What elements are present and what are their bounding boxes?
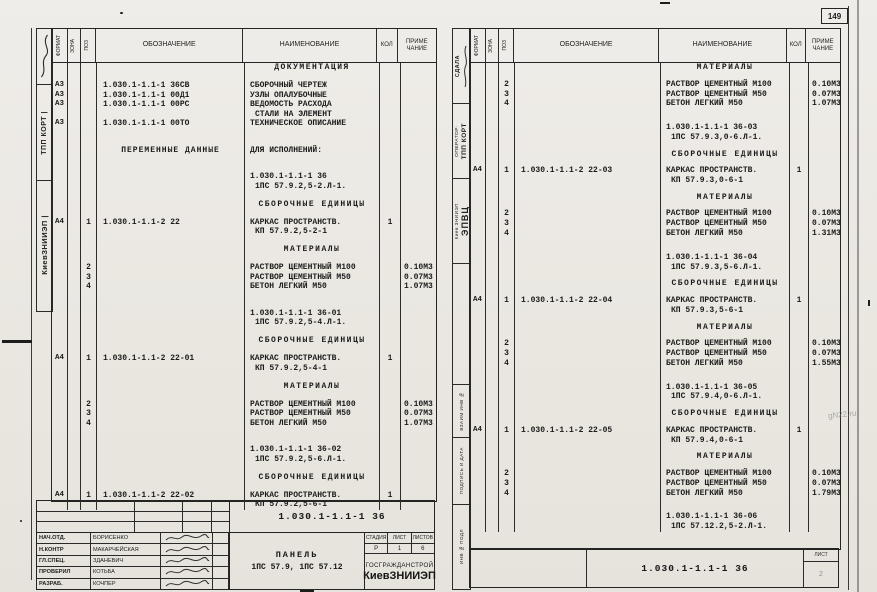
column-header-zone: ЗОНА xyxy=(71,39,77,53)
spec-line xyxy=(52,373,436,382)
spec-line xyxy=(470,159,840,166)
spec-line xyxy=(470,186,840,193)
role-label: ГЛ.СПЕЦ. xyxy=(37,556,91,566)
spec-line: 3РАСТВОР ЦЕМЕНТНЫЙ М500.07М3 xyxy=(470,479,840,489)
right-table-header: ФОРМАТ ЗОНА ПОЗ ОБОЗНАЧЕНИЕ НАИМЕНОВАНИЕ… xyxy=(470,29,840,63)
spec-line xyxy=(52,137,436,146)
spec-line: А411.030.1-1.1-2 22-03КАРКАС ПРОСТРАНСТВ… xyxy=(470,166,840,176)
column-header-pos: ПОЗ xyxy=(85,40,91,51)
spec-line: А411.030.1-1.1-2 22-04КАРКАС ПРОСТРАНСТВ… xyxy=(470,296,840,306)
podpis-data-label: ПОДПИСЬ И ДАТА xyxy=(459,447,464,494)
spec-line xyxy=(470,446,840,453)
date-cell xyxy=(213,579,229,589)
title-block-row: НАЧ.ОТД.БОРИСЕНКО xyxy=(37,533,229,544)
spec-line xyxy=(470,376,840,383)
left-margin-stamp-kievzniiep: КиевЗНИИЭП | xyxy=(37,181,52,309)
left-margin-stamp-tpp-kort: ТПП КОРТ | xyxy=(37,85,52,181)
right-page-frame-line xyxy=(848,6,849,590)
spec-line xyxy=(470,143,840,150)
spec-line xyxy=(52,129,436,138)
panel-title-line1: ПАНЕЛЬ xyxy=(276,550,319,560)
spec-line xyxy=(52,255,436,264)
sheets-value: 6 xyxy=(412,544,434,553)
spec-line xyxy=(52,292,436,301)
spec-line xyxy=(52,464,436,473)
spec-line: 1ПС 57.9.3,0-6.Л-1. xyxy=(470,133,840,143)
spec-line: 3РАСТВОР ЦЕМЕНТНЫЙ М500.07М3 xyxy=(470,90,840,100)
site-watermark: gN22.ru xyxy=(828,409,857,421)
spec-line: 1ПС 57.9.2,5-2.Л-1. xyxy=(52,182,436,192)
spec-line: 1ПС 57.12.2,5-2.Л-1. xyxy=(470,522,840,532)
column-header-designation: ОБОЗНАЧЕНИЕ xyxy=(560,41,613,49)
spec-line xyxy=(52,428,436,437)
footer-sheet-value: 2 xyxy=(804,562,838,587)
spec-line: СТАЛИ НА ЭЛЕМЕНТ xyxy=(52,110,436,120)
spec-line: МАТЕРИАЛЫ xyxy=(470,193,840,203)
spec-line xyxy=(52,73,436,82)
handwritten-signature xyxy=(37,29,52,84)
spec-line: 2РАСТВОР ЦЕМЕНТНЫЙ М1000.10М3 xyxy=(52,400,436,410)
spec-line xyxy=(52,328,436,337)
spec-line: 1.030.1-1.1-1 36-01 xyxy=(52,309,436,319)
left-page-frame-line xyxy=(31,28,32,580)
title-block-signature-rows: НАЧ.ОТД.БОРИСЕНКОН.КОНТРМАКАРЧЕЙСКАЯГЛ.С… xyxy=(36,532,230,590)
spec-line xyxy=(470,369,840,376)
spec-line xyxy=(470,419,840,426)
stage-label: СТАДИЯ xyxy=(365,533,388,543)
title-block-row: Н.КОНТРМАКАРЧЕЙСКАЯ xyxy=(37,544,229,555)
handwritten-signature xyxy=(161,567,213,577)
spec-line xyxy=(470,239,840,246)
spec-line: 1ПС 57.9.4,0-6.Л-1. xyxy=(470,392,840,402)
panel-title-line2: 1ПС 57.9, 1ПС 57.12 xyxy=(251,563,342,572)
spec-line xyxy=(52,191,436,200)
spec-line: А411.030.1-1.1-2 22-02КАРКАС ПРОСТРАНСТВ… xyxy=(52,491,436,501)
handwritten-signature xyxy=(161,579,213,589)
column-header-note-line2: ЧАНИЕ xyxy=(812,46,833,53)
scan-speck xyxy=(868,300,870,306)
spec-line xyxy=(52,209,436,218)
scan-speck xyxy=(120,12,123,14)
role-label: РАЗРАБ. xyxy=(37,579,91,589)
page-number-box: 149 xyxy=(821,8,848,24)
inv-podl-label: ИНВ № ПОДЛ xyxy=(459,529,464,564)
spec-line: СБОРОЧНЫЕ ЕДИНИЦЫ xyxy=(470,409,840,419)
date-cell xyxy=(213,544,229,554)
spec-line xyxy=(470,402,840,409)
scan-edge-line xyxy=(857,0,859,592)
person-name: КОТЬБА xyxy=(91,567,161,577)
spec-line xyxy=(470,506,840,513)
spec-line: 1ПС 57.9.2,5-4.Л-1. xyxy=(52,318,436,328)
spec-line: 4БЕТОН ЛЕГКИЙ М501.79М3 xyxy=(470,489,840,499)
spec-line: 2РАСТВОР ЦЕМЕНТНЫЙ М1000.10М3 xyxy=(470,80,840,90)
left-table-header: ФОРМАТ ЗОНА ПОЗ ОБОЗНАЧЕНИЕ НАИМЕНОВАНИЕ… xyxy=(52,29,436,63)
date-cell xyxy=(213,533,229,543)
spec-line: МАТЕРИАЛЫ xyxy=(52,382,436,392)
column-header-note-line1: ПРИМЕ xyxy=(812,39,834,46)
spec-line: 4БЕТОН ЛЕГКИЙ М501.07М3 xyxy=(470,99,840,109)
spec-line xyxy=(470,462,840,469)
stamp-label: КиевЗНИИЭП | xyxy=(40,215,49,275)
spec-line: КП 57.9.4,0-6-1 xyxy=(470,436,840,446)
column-header-format: ФОРМАТ xyxy=(475,35,481,56)
spec-line: СБОРОЧНЫЕ ЕДИНИЦЫ xyxy=(470,150,840,160)
sheets-label: ЛИСТОВ xyxy=(412,533,434,543)
scan-speck xyxy=(660,2,670,4)
left-spec-table: ФОРМАТ ЗОНА ПОЗ ОБОЗНАЧЕНИЕ НАИМЕНОВАНИЕ… xyxy=(51,28,437,502)
spec-line xyxy=(470,332,840,339)
kiev-zniiep-label: Киев ЗНИИЭП xyxy=(454,203,459,239)
spec-line: КП 57.9.2,5-4-1 xyxy=(52,364,436,374)
spec-line: 1ПС 57.9.3,5-6.Л-1. xyxy=(470,263,840,273)
person-name: МАКАРЧЕЙСКАЯ xyxy=(91,544,161,554)
org-name-line1: ГОСГРАЖДАНСТРОЙ xyxy=(366,562,434,569)
date-cell xyxy=(213,567,229,577)
spec-line: А31.030.1-1.1-1 00Д1УЗЛЫ ОПАЛУБОЧНЫЕ xyxy=(52,91,436,101)
vzaim-inv-label: ВЗАИМ ИНВ № xyxy=(459,392,464,431)
spec-line: А411.030.1-1.1-2 22-01КАРКАС ПРОСТРАНСТВ… xyxy=(52,354,436,364)
right-footer-band: 1.030.1-1.1-1 36 ЛИСТ 2 xyxy=(469,548,839,588)
spec-line: ДОКУМЕНТАЦИЯ xyxy=(52,63,436,73)
handwritten-signature xyxy=(161,533,213,543)
operator-label: ОПЕРАТОР· xyxy=(455,125,460,157)
title-block-row: ПРОВЕРИЛКОТЬБА xyxy=(37,567,229,578)
footer-doc-number: 1.030.1-1.1-1 36 xyxy=(587,549,803,587)
column-header-qty: КОЛ xyxy=(381,42,393,49)
spec-line: СБОРОЧНЫЕ ЕДИНИЦЫ xyxy=(52,336,436,346)
role-label: Н.КОНТР xyxy=(37,544,91,554)
right-margin-sdala-box: СДАЛА xyxy=(453,29,470,104)
role-label: НАЧ.ОТД. xyxy=(37,533,91,543)
spec-line xyxy=(470,273,840,280)
right-table-body: МАТЕРИАЛЫ2РАСТВОР ЦЕМЕНТНЫЙ М1000.10М33Р… xyxy=(470,63,840,532)
right-margin-vzaim-box: ВЗАИМ ИНВ № xyxy=(453,385,470,438)
spec-line: КП 57.9.3,5-6-1 xyxy=(470,306,840,316)
left-table-body: ДОКУМЕНТАЦИЯА31.030.1-1.1-1 36СВСБОРОЧНЫ… xyxy=(52,63,436,510)
spec-line: 4БЕТОН ЛЕГКИЙ М501.55М3 xyxy=(470,359,840,369)
column-header-note-line1: ПРИМЕ xyxy=(406,39,428,46)
scan-speck xyxy=(20,520,22,522)
spec-line: 4БЕТОН ЛЕГКИЙ М501.07М3 xyxy=(52,419,436,429)
column-header-note-line2: ЧАНИЕ xyxy=(406,46,427,53)
footer-sheet-box: ЛИСТ 2 xyxy=(803,549,838,587)
right-margin-empty-box xyxy=(453,264,470,385)
spec-line xyxy=(52,155,436,164)
spec-line xyxy=(52,482,436,491)
spec-line: 1.030.1-1.1-1 36-05 xyxy=(470,383,840,393)
spec-line: КП 57.9.3,0-6-1 xyxy=(470,176,840,186)
footer-left-cell xyxy=(470,549,587,587)
spec-line: 2РАСТВОР ЦЕМЕНТНЫЙ М1000.10М3 xyxy=(470,209,840,219)
spec-line xyxy=(52,346,436,355)
column-header-format: ФОРМАТ xyxy=(57,35,63,56)
spec-line: А31.030.1-1.1-1 00ТОТЕХНИЧЕСКОЕ ОПИСАНИЕ xyxy=(52,119,436,129)
stamp-label: ТПП КОРТ | xyxy=(41,111,48,155)
revision-grid xyxy=(36,500,230,533)
tpp-kort-label: ТПП КОРТ xyxy=(461,123,468,159)
spec-line xyxy=(52,437,436,446)
spec-line: 3РАСТВОР ЦЕМЕНТНЫЙ М500.07М3 xyxy=(52,273,436,283)
title-block-doc-number: 1.030.1-1.1-1 36 xyxy=(229,500,435,533)
stage-value: Р xyxy=(365,544,388,553)
spec-line: 4БЕТОН ЛЕГКИЙ М501.07М3 xyxy=(52,282,436,292)
page-number: 149 xyxy=(828,12,841,21)
spec-line: 1.030.1-1.1-1 36-06 xyxy=(470,512,840,522)
spec-line xyxy=(470,73,840,80)
spec-line: МАТЕРИАЛЫ xyxy=(52,245,436,255)
spec-line: СБОРОЧНЫЕ ЕДИНИЦЫ xyxy=(470,279,840,289)
right-margin-podpis-box: ПОДПИСЬ И ДАТА xyxy=(453,438,470,505)
right-margin-inv-box: ИНВ № ПОДЛ xyxy=(453,505,470,589)
spec-line xyxy=(470,316,840,323)
spec-line: 1.030.1-1.1-1 36-03 xyxy=(470,123,840,133)
spec-line xyxy=(470,203,840,210)
handwritten-signature xyxy=(161,556,213,566)
right-margin-operator-box: ОПЕРАТОР· ТПП КОРТ xyxy=(453,104,470,179)
sheet-value: 1 xyxy=(388,544,411,553)
column-header-qty: КОЛ xyxy=(790,42,802,49)
right-margin-epvc-box: Киев ЗНИИЭП ЭПВЦ xyxy=(453,179,470,264)
right-spec-table: ФОРМАТ ЗОНА ПОЗ ОБОЗНАЧЕНИЕ НАИМЕНОВАНИЕ… xyxy=(469,28,841,550)
org-name-line2: КиевЗНИИЭП xyxy=(363,570,436,582)
spec-line xyxy=(470,109,840,116)
person-name: БОРИСЕНКО xyxy=(91,533,161,543)
spec-line: МАТЕРИАЛЫ xyxy=(470,323,840,333)
role-label: ПРОВЕРИЛ xyxy=(37,567,91,577)
spec-line: 1.030.1-1.1-1 36 xyxy=(52,172,436,182)
spec-line xyxy=(470,289,840,296)
column-header-pos: ПОЗ xyxy=(503,40,509,51)
spec-line: 2РАСТВОР ЦЕМЕНТНЫЙ М1000.10М3 xyxy=(52,263,436,273)
spec-line: 3РАСТВОР ЦЕМЕНТНЫЙ М500.07М3 xyxy=(52,409,436,419)
scanned-specification-sheet: ТПП КОРТ | КиевЗНИИЭП | ФОРМАТ ЗОНА ПОЗ … xyxy=(0,0,877,592)
spec-line: А31.030.1-1.1-1 00РСВЕДОМОСТЬ РАСХОДА xyxy=(52,100,436,110)
spec-line xyxy=(52,237,436,246)
spec-line: 2РАСТВОР ЦЕМЕНТНЫЙ М1000.10М3 xyxy=(470,339,840,349)
column-header-designation: ОБОЗНАЧЕНИЕ xyxy=(143,41,196,49)
sdala-label: СДАЛА xyxy=(455,55,461,77)
spec-line xyxy=(470,246,840,253)
spec-line: СБОРОЧНЫЕ ЕДИНИЦЫ xyxy=(52,200,436,210)
column-header-name: НАИМЕНОВАНИЕ xyxy=(693,41,753,49)
spec-line: 3РАСТВОР ЦЕМЕНТНЫЙ М500.07М3 xyxy=(470,219,840,229)
spec-line xyxy=(52,391,436,400)
spec-line: МАТЕРИАЛЫ xyxy=(470,452,840,462)
column-header-name: НАИМЕНОВАНИЕ xyxy=(280,41,340,49)
epvc-label: ЭПВЦ xyxy=(460,206,470,236)
spec-line xyxy=(52,164,436,173)
left-margin-signature-box xyxy=(37,29,52,85)
scan-speck xyxy=(2,340,32,343)
handwritten-signature xyxy=(161,544,213,554)
spec-line: ПЕРЕМЕННЫЕ ДАННЫЕДЛЯ ИСПОЛНЕНИЙ: xyxy=(52,146,436,156)
title-block-row: РАЗРАБ.КОЧПЕР xyxy=(37,579,229,589)
spec-line: 4БЕТОН ЛЕГКИЙ М501.31М3 xyxy=(470,229,840,239)
spec-line: 3РАСТВОР ЦЕМЕНТНЫЙ М500.07М3 xyxy=(470,349,840,359)
spec-line: А31.030.1-1.1-1 36СВСБОРОЧНЫЙ ЧЕРТЕЖ xyxy=(52,81,436,91)
spec-line: 2РАСТВОР ЦЕМЕНТНЫЙ М1000.10М3 xyxy=(470,469,840,479)
title-block-title: ПАНЕЛЬ 1ПС 57.9, 1ПС 57.12 xyxy=(229,532,365,590)
spec-line xyxy=(52,300,436,309)
spec-line xyxy=(470,116,840,123)
person-name: ЗДАНЕВИЧ xyxy=(91,556,161,566)
spec-line xyxy=(470,499,840,506)
title-block-stage-org: СТАДИЯ ЛИСТ ЛИСТОВ Р 1 6 ГОСГРАЖДАНСТРОЙ… xyxy=(364,532,435,590)
spec-line: А411.030.1-1.1-2 22-05КАРКАС ПРОСТРАНСТВ… xyxy=(470,426,840,436)
title-block-row: ГЛ.СПЕЦ.ЗДАНЕВИЧ xyxy=(37,556,229,567)
person-name: КОЧПЕР xyxy=(91,579,161,589)
spec-line: СБОРОЧНЫЕ ЕДИНИЦЫ xyxy=(52,473,436,483)
spec-line: МАТЕРИАЛЫ xyxy=(470,63,840,73)
spec-line: А411.030.1-1.1-2 22КАРКАС ПРОСТРАНСТВ.1 xyxy=(52,218,436,228)
handwritten-signature xyxy=(462,41,468,91)
sheet-label: ЛИСТ xyxy=(388,533,411,543)
spec-line: 1.030.1-1.1-1 36-04 xyxy=(470,253,840,263)
spec-line: КП 57.9.2,5-2-1 xyxy=(52,227,436,237)
date-cell xyxy=(213,556,229,566)
spec-line: 1.030.1-1.1-1 36-02 xyxy=(52,445,436,455)
footer-sheet-label: ЛИСТ xyxy=(804,549,838,562)
column-header-zone: ЗОНА xyxy=(489,39,495,53)
spec-line: 1ПС 57.9.2,5-6.Л-1. xyxy=(52,455,436,465)
